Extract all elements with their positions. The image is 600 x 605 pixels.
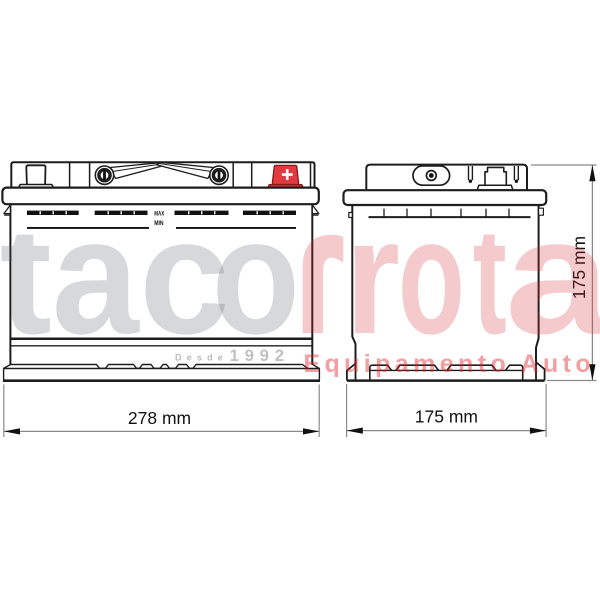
svg-text:MIN: MIN [154,220,164,227]
svg-text:Equipamento Auto: Equipamento Auto [303,350,595,378]
svg-text:175 mm: 175 mm [415,407,478,427]
svg-text:Desde: Desde [175,352,228,362]
svg-text:MAX: MAX [154,210,165,217]
svg-text:1992: 1992 [230,346,290,365]
svg-text:278 mm: 278 mm [128,408,191,428]
